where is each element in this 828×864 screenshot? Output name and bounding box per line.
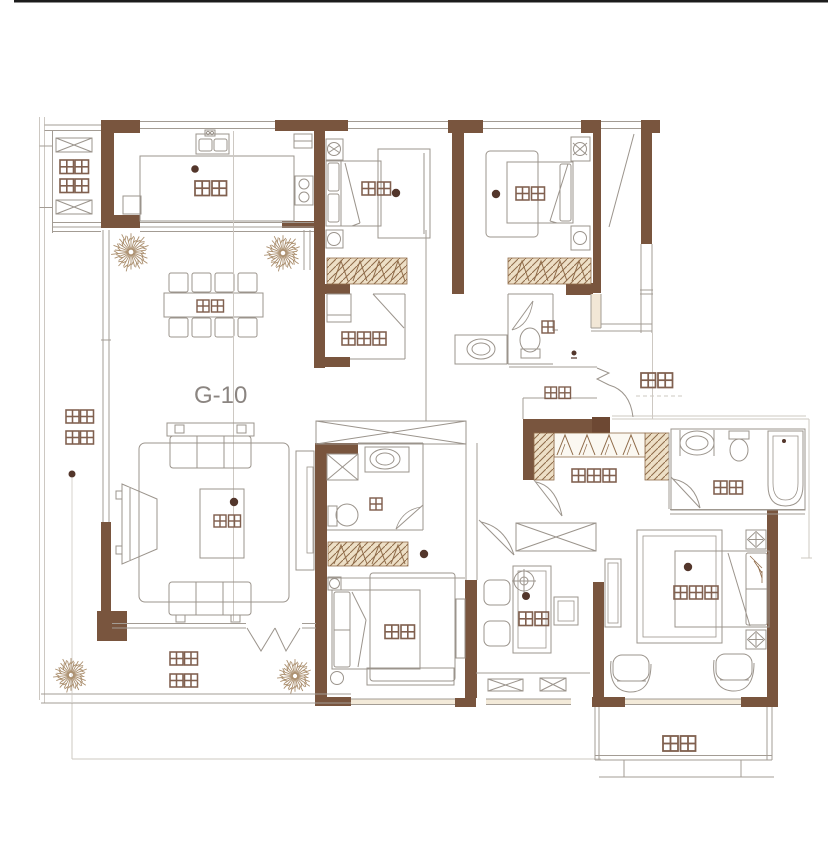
svg-text:G-10: G-10: [194, 382, 247, 409]
